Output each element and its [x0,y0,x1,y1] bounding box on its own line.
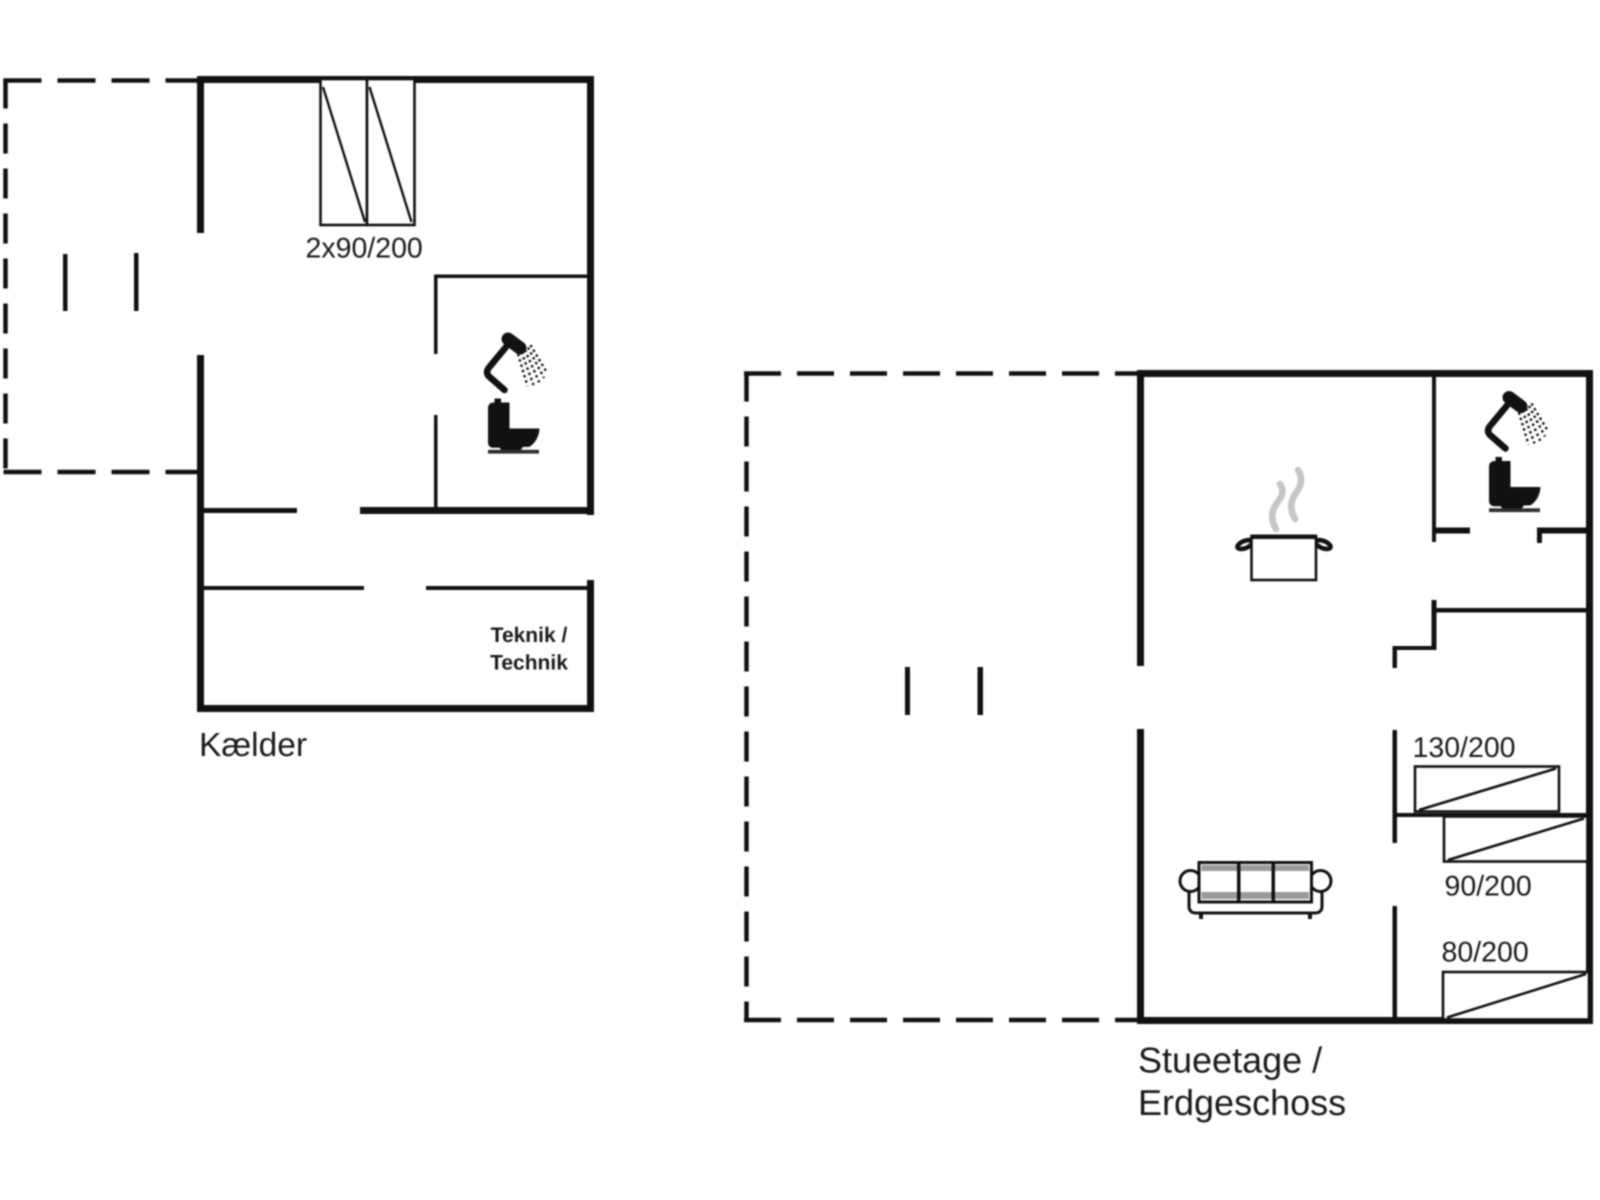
svg-text:Technik: Technik [490,652,568,675]
svg-text:2x90/200: 2x90/200 [306,233,423,265]
svg-text:Erdgeschoss: Erdgeschoss [1138,1082,1346,1123]
svg-text:Kælder: Kælder [199,727,307,764]
svg-text:Teknik /: Teknik / [491,624,568,647]
svg-text:80/200: 80/200 [1442,937,1529,969]
svg-text:90/200: 90/200 [1445,871,1532,903]
svg-text:130/200: 130/200 [1413,732,1516,764]
svg-text:Stueetage /: Stueetage / [1138,1040,1322,1081]
